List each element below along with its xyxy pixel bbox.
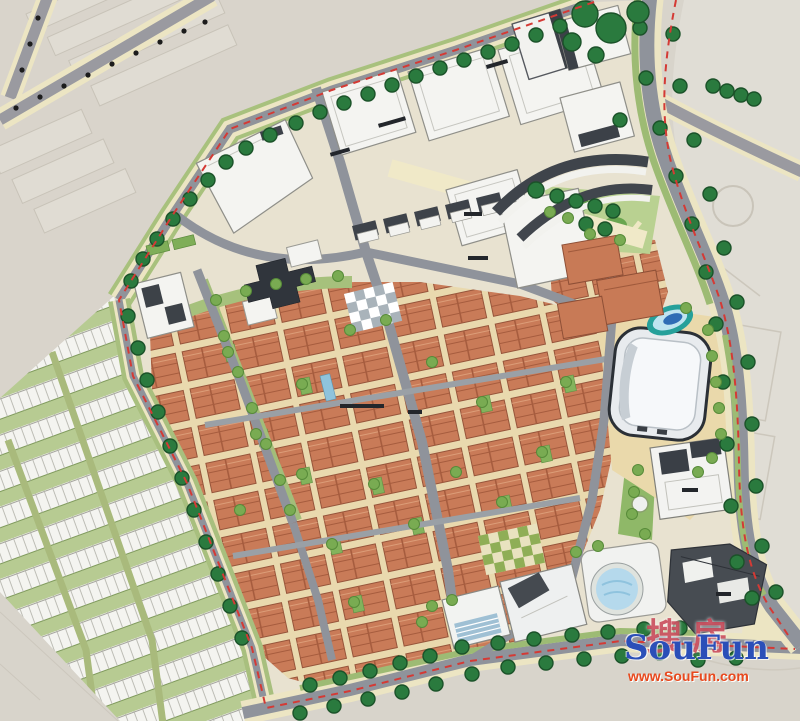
- street-tree-dot-icon: [13, 105, 18, 110]
- tree-icon: [333, 271, 344, 282]
- tree-icon: [585, 229, 596, 240]
- tree-icon: [293, 706, 307, 720]
- tree-icon: [745, 591, 759, 605]
- building-label-bar: [464, 212, 482, 216]
- street-tree-dot-icon: [37, 94, 42, 99]
- tree-icon: [527, 632, 541, 646]
- tree-icon: [477, 397, 488, 408]
- tree-cluster-icon: [572, 1, 598, 27]
- tree-icon: [693, 467, 704, 478]
- tree-icon: [393, 656, 407, 670]
- tree-icon: [239, 141, 253, 155]
- tree-icon: [275, 475, 286, 486]
- tree-icon: [497, 497, 508, 508]
- tree-icon: [539, 656, 553, 670]
- round-pool: [591, 563, 643, 615]
- tree-icon: [673, 79, 687, 93]
- tree-icon: [633, 465, 644, 476]
- tree-icon: [615, 649, 629, 663]
- street-tree-dot-icon: [202, 19, 207, 24]
- tree-icon: [606, 204, 620, 218]
- tree-icon: [501, 660, 515, 674]
- tree-icon: [247, 403, 258, 414]
- tree-icon: [755, 539, 769, 553]
- tree-icon: [720, 84, 734, 98]
- tree-icon: [361, 692, 375, 706]
- tree-icon: [749, 479, 763, 493]
- tree-icon: [687, 133, 701, 147]
- tree-icon: [395, 685, 409, 699]
- tree-icon: [241, 286, 252, 297]
- tree-icon: [553, 19, 567, 33]
- tree-icon: [163, 439, 177, 453]
- tree-icon: [639, 71, 653, 85]
- site-plan-image: 搜房 SouFun www.SouFun.com: [0, 0, 800, 721]
- tree-icon: [691, 653, 705, 667]
- tree-icon: [235, 505, 246, 516]
- tree-icon: [601, 625, 615, 639]
- tree-icon: [491, 636, 505, 650]
- building-label-bar: [468, 256, 488, 260]
- tree-icon: [327, 539, 338, 550]
- tree-icon: [537, 447, 548, 458]
- tree-icon: [235, 631, 249, 645]
- tree-icon: [349, 597, 360, 608]
- tree-icon: [563, 213, 574, 224]
- tree-icon: [711, 377, 722, 388]
- tree-icon: [653, 646, 667, 660]
- tree-icon: [150, 232, 164, 246]
- tree-icon: [747, 92, 761, 106]
- tree-icon: [561, 377, 572, 388]
- tree-cluster-icon: [613, 113, 627, 127]
- tree-icon: [417, 617, 428, 628]
- tree-icon: [629, 487, 640, 498]
- street-tree-dot-icon: [19, 67, 24, 72]
- tree-icon: [271, 279, 282, 290]
- tree-icon: [297, 379, 308, 390]
- tree-icon: [640, 529, 651, 540]
- tree-icon: [333, 671, 347, 685]
- tree-icon: [729, 651, 743, 665]
- tree-icon: [457, 53, 471, 67]
- tree-icon: [183, 192, 197, 206]
- tree-icon: [337, 96, 351, 110]
- tree-icon: [745, 417, 759, 431]
- tree-icon: [571, 547, 582, 558]
- tree-icon: [730, 555, 744, 569]
- tree-icon: [381, 315, 392, 326]
- tree-icon: [593, 541, 604, 552]
- tree-icon: [313, 105, 327, 119]
- tree-icon: [505, 37, 519, 51]
- building-label-bar: [682, 488, 698, 492]
- tree-icon: [699, 265, 713, 279]
- tree-icon: [361, 87, 375, 101]
- tree-icon: [673, 621, 687, 635]
- tree-icon: [717, 241, 731, 255]
- tree-icon: [724, 499, 738, 513]
- tree-icon: [577, 652, 591, 666]
- tree-icon: [409, 69, 423, 83]
- tree-cluster-icon: [627, 1, 649, 23]
- street-tree-dot-icon: [109, 61, 114, 66]
- street-tree-dot-icon: [157, 39, 162, 44]
- tree-icon: [529, 28, 543, 42]
- tree-icon: [301, 274, 312, 285]
- tree-icon: [140, 373, 154, 387]
- tree-icon: [569, 194, 583, 208]
- tree-icon: [465, 667, 479, 681]
- stadium-hall: [607, 325, 714, 442]
- tree-icon: [219, 331, 230, 342]
- tree-cluster-icon: [588, 47, 604, 63]
- tree-icon: [124, 274, 138, 288]
- tree-icon: [730, 295, 744, 309]
- tree-icon: [681, 303, 692, 314]
- tree-icon: [451, 467, 462, 478]
- tree-icon: [427, 357, 438, 368]
- tree-icon: [666, 27, 680, 41]
- tree-icon: [429, 677, 443, 691]
- tree-icon: [363, 664, 377, 678]
- tree-icon: [409, 519, 420, 530]
- tree-icon: [223, 347, 234, 358]
- building-label-bar: [340, 404, 384, 408]
- tree-icon: [233, 367, 244, 378]
- street-tree-dot-icon: [61, 83, 66, 88]
- office-building: [650, 438, 733, 520]
- tree-icon: [297, 469, 308, 480]
- tree-icon: [423, 649, 437, 663]
- street-tree-dot-icon: [181, 28, 186, 33]
- tree-icon: [637, 622, 651, 636]
- tree-icon: [201, 173, 215, 187]
- tree-icon: [223, 599, 237, 613]
- tree-icon: [550, 189, 564, 203]
- tree-icon: [285, 505, 296, 516]
- tree-icon: [427, 601, 438, 612]
- street-tree-dot-icon: [133, 50, 138, 55]
- tree-icon: [289, 116, 303, 130]
- tree-icon: [345, 325, 356, 336]
- tree-cluster-icon: [596, 13, 626, 43]
- tree-icon: [327, 699, 341, 713]
- tree-icon: [263, 128, 277, 142]
- tree-icon: [706, 79, 720, 93]
- tree-cluster-icon: [563, 33, 581, 51]
- master-plan-canvas: [0, 0, 800, 721]
- tree-icon: [703, 187, 717, 201]
- tree-icon: [615, 235, 626, 246]
- tree-icon: [447, 595, 458, 606]
- tree-cluster-icon: [528, 182, 544, 198]
- tree-icon: [303, 678, 317, 692]
- street-tree-dot-icon: [35, 15, 40, 20]
- tree-icon: [769, 585, 783, 599]
- tree-icon: [714, 403, 725, 414]
- tree-icon: [455, 640, 469, 654]
- tree-icon: [716, 429, 727, 440]
- tree-icon: [121, 309, 135, 323]
- tree-icon: [565, 628, 579, 642]
- tree-icon: [251, 429, 262, 440]
- tree-icon: [734, 88, 748, 102]
- tree-icon: [703, 325, 714, 336]
- street-tree-dot-icon: [85, 72, 90, 77]
- tree-icon: [545, 207, 556, 218]
- tree-icon: [385, 78, 399, 92]
- tree-icon: [588, 199, 602, 213]
- building-label-bar: [408, 410, 422, 414]
- building-label-bar: [716, 592, 731, 596]
- tree-icon: [707, 351, 718, 362]
- tree-icon: [151, 405, 165, 419]
- street-tree-dot-icon: [27, 41, 32, 46]
- tree-icon: [433, 61, 447, 75]
- tree-icon: [741, 355, 755, 369]
- tree-icon: [707, 453, 718, 464]
- tree-icon: [211, 295, 222, 306]
- tree-icon: [131, 341, 145, 355]
- tree-icon: [627, 509, 638, 520]
- tree-icon: [598, 222, 612, 236]
- tree-icon: [261, 439, 272, 450]
- tree-icon: [219, 155, 233, 169]
- tree-icon: [685, 217, 699, 231]
- tree-icon: [369, 479, 380, 490]
- tree-icon: [481, 45, 495, 59]
